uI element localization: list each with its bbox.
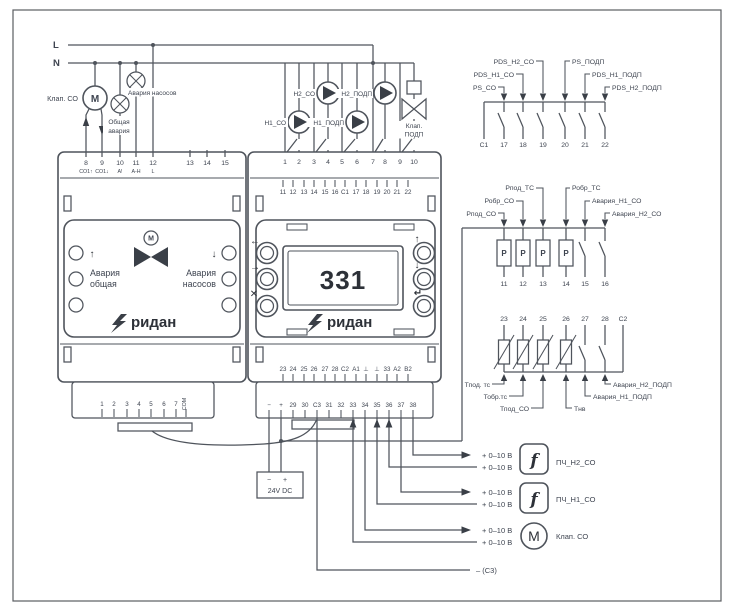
terminal-number: 2	[297, 159, 301, 166]
terminal-number: 20	[561, 142, 569, 149]
button-inner	[418, 273, 431, 286]
terminal-number: 22	[601, 142, 609, 149]
sensor-label: Авария_Н2_ПОДП	[613, 382, 672, 389]
hinge-clip	[64, 196, 71, 211]
terminal-number: 10	[116, 160, 124, 167]
pump-label: Н2_ПОДП	[341, 91, 372, 98]
terminal-number: 19	[539, 142, 547, 149]
sensor-label: PS_ПОДП	[572, 59, 604, 66]
output-device-label: Клап. СО	[556, 532, 588, 541]
wiring-diagram-page: L N M Клап. СО Общая авария Авария насос…	[0, 0, 733, 612]
terminal-number: 35	[374, 402, 381, 409]
terminal-number: 25	[539, 316, 547, 323]
terminal-number: 4	[326, 159, 330, 166]
arrow-up-icon: ↑	[90, 249, 95, 260]
terminal-number: 26	[562, 316, 570, 323]
pump-label: Н2_СО	[293, 91, 315, 98]
terminal-number: 27	[581, 316, 589, 323]
button-inner	[261, 247, 274, 260]
output-voltage-label: + 0–10 В	[482, 500, 512, 509]
terminal-number: 12	[519, 281, 527, 288]
terminal-number: C2	[619, 316, 628, 323]
terminal-number: 16	[332, 189, 339, 196]
terminal-number: 17	[353, 189, 360, 196]
right-bottom-deck	[256, 382, 433, 418]
terminal-number: 32	[338, 402, 345, 409]
sensor-label: Робр_ТС	[572, 184, 601, 192]
terminal-number: 13	[186, 160, 194, 167]
button-back-icon: ←	[250, 236, 260, 247]
terminal-number: 3	[312, 159, 316, 166]
terminal-number: 5	[340, 159, 344, 166]
terminal-number: +	[279, 402, 283, 409]
valve-podp-label: Клап.	[406, 123, 423, 130]
terminal-number: 9	[398, 159, 402, 166]
output-voltage-label: + 0–10 В	[482, 451, 512, 460]
terminal-number: 18	[363, 189, 370, 196]
button-inner	[261, 300, 274, 313]
pump-label: Н1_СО	[264, 120, 286, 127]
pressure-letter: P	[563, 249, 569, 258]
terminal-number: 13	[539, 281, 547, 288]
ground-ref-label: – (С3)	[476, 566, 497, 575]
terminal-number: 14	[562, 281, 570, 288]
terminal-sub-label: А!	[117, 169, 122, 175]
terminal-number: 8	[84, 160, 88, 167]
button-down-icon: ↓	[415, 260, 420, 271]
terminal-number: 31	[326, 402, 333, 409]
panel-tab	[394, 224, 414, 230]
sensor-label: Авария_Н2_СО	[612, 211, 661, 218]
led-indicator	[69, 298, 83, 312]
sensor-label: PDS_H2_CO	[494, 59, 534, 66]
terminal-number: 3	[125, 401, 129, 408]
led-indicator	[222, 298, 236, 312]
hinge-clip	[233, 347, 240, 362]
terminal-number: 27	[322, 366, 329, 373]
left-front-panel: ↑ ↓ Авария общая Авария насосов M ридан	[64, 220, 240, 337]
terminal-number: 26	[311, 366, 318, 373]
valve-co-label: Клап. СО	[47, 94, 78, 103]
terminal-number: 17	[500, 142, 508, 149]
terminal-number: 23	[500, 316, 508, 323]
terminal-number: 13	[301, 189, 308, 196]
hinge-clip	[233, 196, 240, 211]
led-indicator	[222, 246, 236, 260]
led-indicator	[69, 246, 83, 260]
hinge-clip	[64, 347, 71, 362]
terminal-number: 37	[398, 402, 405, 409]
sensor-label: PDS_H2_ПОДП	[612, 85, 662, 92]
terminal-number: 8	[383, 159, 387, 166]
pressure-letter: P	[520, 249, 526, 258]
terminal-number: 11	[280, 189, 287, 196]
pump-label: Н1_ПОДП	[313, 120, 344, 127]
terminal-sub-label: СО1↑	[79, 169, 92, 175]
hinge-clip	[256, 196, 263, 211]
panel-tab	[394, 329, 414, 335]
pressure-letter: P	[501, 249, 507, 258]
terminal-number: 16	[601, 281, 609, 288]
panel-tab	[287, 329, 307, 335]
terminal-number: 14	[311, 189, 318, 196]
hinge-clip	[428, 196, 435, 211]
alarm-general-label: Авария	[90, 268, 120, 278]
terminal-number: 33	[384, 366, 391, 373]
terminal-number: 12	[290, 189, 297, 196]
alarm-pumps-label: Авария	[186, 268, 216, 278]
terminal-number: 15	[322, 189, 329, 196]
sensor-label: Авария_Н1_ПОДП	[593, 394, 652, 401]
junction-dot	[371, 61, 375, 65]
terminal-number: −	[267, 402, 271, 409]
left-bottom-deck	[72, 382, 214, 418]
motor-letter: M	[528, 528, 540, 544]
terminal-number: C1	[341, 189, 349, 196]
output-device-label: ПЧ_Н2_СО	[556, 458, 596, 467]
terminal-number: 10	[410, 159, 418, 166]
valve-coil-icon	[407, 81, 421, 94]
terminal-number: 29	[290, 402, 297, 409]
brand-text: ридан	[327, 314, 372, 331]
button-inner	[418, 300, 431, 313]
valve-podp-label: ПОДП	[405, 132, 424, 139]
lamp-general-label: авария	[108, 128, 130, 135]
terminal-number: 6	[162, 401, 166, 408]
terminal-sub-label: L	[152, 169, 155, 175]
terminal-number: 24	[290, 366, 297, 373]
cover-strip	[118, 423, 192, 431]
terminal-number: 2	[112, 401, 116, 408]
display-value: 331	[320, 265, 366, 295]
terminal-number: ⊥	[363, 366, 368, 373]
terminal-number: 7	[371, 159, 375, 166]
lamp-general-label: Общая	[108, 118, 130, 126]
terminal-com-label: СОМ	[182, 398, 188, 410]
sensor-label: PDS_H1_CO	[474, 72, 514, 79]
terminal-number: 12	[149, 160, 157, 167]
line-l-label: L	[53, 40, 59, 51]
output-voltage-label: + 0–10 В	[482, 538, 512, 547]
sensor-label: Тнв	[574, 406, 586, 413]
terminal-number: 21	[581, 142, 589, 149]
output-device-label: ПЧ_Н1_СО	[556, 495, 596, 504]
psu-minus: −	[267, 477, 271, 484]
terminal-sub-label: СО1↓	[95, 169, 108, 175]
led-indicator	[222, 272, 236, 286]
alarm-pumps-label: насосов	[183, 279, 217, 289]
led-indicator	[69, 272, 83, 286]
terminal-number: 15	[581, 281, 589, 288]
terminal-number: 19	[374, 189, 381, 196]
terminal-number: 38	[410, 402, 417, 409]
button-cancel-icon: ✕	[250, 289, 258, 300]
terminal-number: 20	[384, 189, 391, 196]
terminal-number: B2	[404, 366, 412, 373]
terminal-number: 18	[519, 142, 527, 149]
right-front-panel: 331 ← → ✕ ↑ ↓ ↵ ридан	[250, 220, 435, 337]
output-voltage-label: + 0–10 В	[482, 463, 512, 472]
wiring-diagram: L N M Клап. СО Общая авария Авария насос…	[0, 0, 733, 612]
sensor-label: Робр_СО	[484, 197, 514, 205]
terminal-number: 28	[601, 316, 609, 323]
sensor-label: Тобр.тс	[484, 393, 508, 401]
terminal-number: 9	[100, 160, 104, 167]
terminal-number: 11	[500, 281, 507, 288]
sensor-label: Рпод_СО	[466, 211, 496, 218]
terminal-number: C2	[341, 366, 349, 373]
terminal-number: 22	[405, 189, 412, 196]
brand-text: ридан	[131, 314, 176, 331]
terminal-number: C1	[480, 142, 489, 149]
terminal-number: A1	[352, 366, 360, 373]
junction-dot	[151, 43, 155, 47]
terminal-number: 28	[332, 366, 339, 373]
button-forward-icon: →	[250, 262, 260, 273]
button-inner	[261, 273, 274, 286]
arrow-down-icon: ↓	[212, 249, 217, 260]
output-voltage-label: + 0–10 В	[482, 526, 512, 535]
alarm-general-label: общая	[90, 279, 117, 289]
hinge-clip	[256, 347, 263, 362]
terminal-number: 36	[386, 402, 393, 409]
terminal-number: 23	[280, 366, 287, 373]
terminal-number: 25	[301, 366, 308, 373]
lamp-pumps-label: Авария насосов	[128, 90, 177, 97]
terminal-number: 21	[394, 189, 401, 196]
terminal-number: C3	[313, 402, 321, 409]
terminal-number: 24	[519, 316, 527, 323]
sensor-label: Тпод_СО	[500, 406, 529, 413]
hinge-clip	[428, 347, 435, 362]
button-enter-icon: ↵	[414, 288, 422, 299]
terminal-number: A2	[393, 366, 401, 373]
sensor-label: PS_CO	[473, 85, 496, 92]
valve-motor-letter: M	[148, 236, 154, 243]
motor-letter: M	[91, 94, 99, 105]
terminal-number: 33	[350, 402, 357, 409]
line-n-label: N	[53, 58, 60, 69]
cover-strip	[292, 420, 354, 429]
terminal-number: 15	[221, 160, 229, 167]
psu-plus: +	[283, 477, 287, 484]
terminal-number: 7	[174, 401, 178, 408]
psu-label: 24V DC	[268, 488, 293, 495]
sensor-label: PDS_H1_ПОДП	[592, 72, 642, 79]
terminal-number: 1	[283, 159, 287, 166]
button-up-icon: ↑	[415, 234, 420, 245]
terminal-number: 30	[302, 402, 309, 409]
pressure-letter: P	[540, 249, 546, 258]
terminal-sub-label: А-Н	[131, 169, 140, 175]
sensor-label: Авария_Н1_СО	[592, 198, 641, 205]
output-voltage-label: + 0–10 В	[482, 488, 512, 497]
sensor-label: Рпод_ТС	[505, 185, 534, 192]
terminal-number: 14	[203, 160, 211, 167]
sensor-label: Тпод. тс	[465, 382, 491, 389]
panel-tab	[287, 224, 307, 230]
terminal-number: 34	[362, 402, 369, 409]
button-inner	[418, 247, 431, 260]
terminal-number: 4	[137, 401, 141, 408]
terminal-number: 6	[355, 159, 359, 166]
terminal-number: ⊥	[374, 366, 379, 373]
terminal-number: 5	[149, 401, 153, 408]
terminal-number: 1	[100, 401, 104, 408]
terminal-number: 11	[132, 160, 139, 167]
